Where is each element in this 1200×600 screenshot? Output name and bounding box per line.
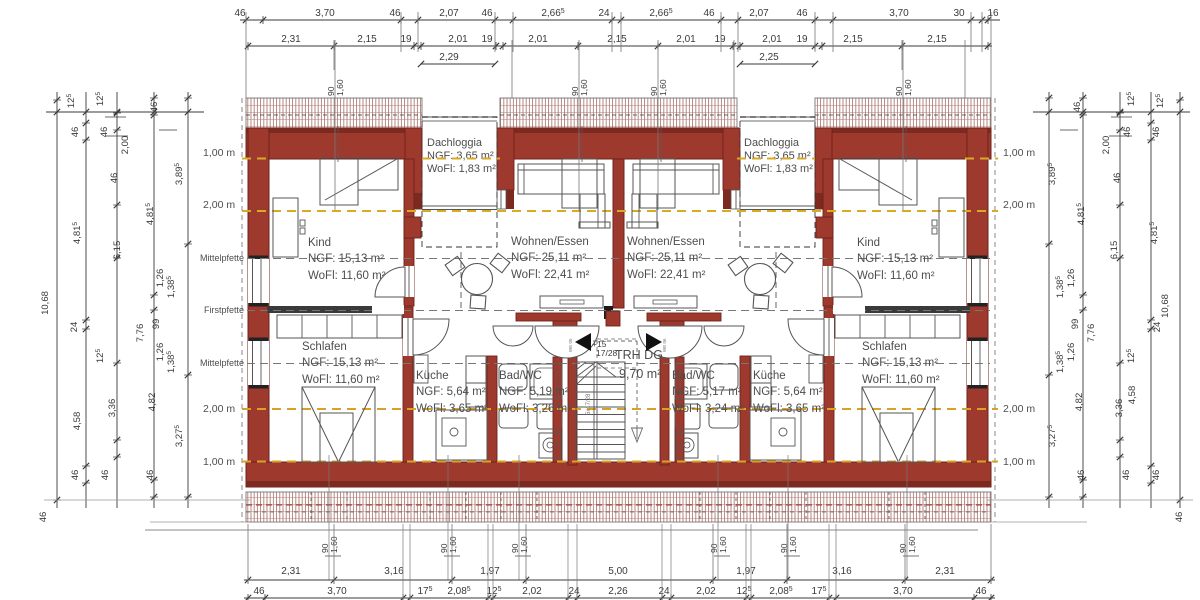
svg-text:WE 05: WE 05 — [568, 338, 573, 352]
svg-text:4,82: 4,82 — [147, 393, 158, 412]
svg-text:9,70 m²: 9,70 m² — [619, 367, 661, 381]
svg-text:2,07: 2,07 — [439, 8, 459, 19]
svg-text:1,60: 1,60 — [579, 79, 589, 96]
svg-text:1,60: 1,60 — [658, 79, 668, 96]
svg-text:3,16: 3,16 — [832, 566, 852, 577]
svg-text:3,70: 3,70 — [315, 8, 335, 19]
svg-text:2,00: 2,00 — [120, 136, 131, 155]
svg-text:46: 46 — [1151, 127, 1162, 138]
svg-text:NGF: 5,64 m²: NGF: 5,64 m² — [416, 386, 486, 398]
svg-text:Bad/WC: Bad/WC — [672, 370, 715, 382]
svg-text:NGF: 3,65 m²: NGF: 3,65 m² — [427, 150, 494, 162]
svg-text:Wohnen/Essen: Wohnen/Essen — [627, 236, 705, 248]
svg-text:5x17/28: 5x17/28 — [586, 393, 592, 415]
svg-text:1,00 m: 1,00 m — [1003, 456, 1035, 468]
svg-text:WoFl: 11,60 m²: WoFl: 11,60 m² — [857, 270, 935, 282]
svg-text:46: 46 — [100, 470, 111, 481]
svg-text:1,26: 1,26 — [1066, 343, 1077, 362]
svg-text:Schlafen: Schlafen — [862, 341, 907, 353]
svg-text:WoFl: 3,26 m²: WoFl: 3,26 m² — [499, 403, 571, 415]
svg-text:3,36: 3,36 — [107, 399, 118, 418]
svg-text:WE 06: WE 06 — [662, 338, 667, 352]
svg-text:1,26: 1,26 — [1066, 269, 1077, 288]
svg-text:Bad/WC: Bad/WC — [499, 370, 542, 382]
svg-text:46: 46 — [389, 8, 401, 19]
svg-text:Kind: Kind — [308, 237, 331, 249]
svg-text:46: 46 — [149, 102, 160, 113]
svg-text:46: 46 — [796, 8, 808, 19]
svg-text:46: 46 — [1112, 173, 1123, 184]
svg-text:24: 24 — [1152, 322, 1163, 333]
svg-text:24: 24 — [598, 8, 610, 19]
svg-text:Küche: Küche — [753, 370, 786, 382]
svg-text:46: 46 — [1121, 470, 1132, 481]
svg-text:46: 46 — [1076, 470, 1087, 481]
svg-text:10,68: 10,68 — [1160, 294, 1171, 318]
svg-text:7,76: 7,76 — [135, 324, 146, 343]
svg-text:2,15: 2,15 — [843, 34, 863, 45]
svg-text:WoFl: 11,60 m²: WoFl: 11,60 m² — [308, 270, 386, 282]
svg-text:2,00 m: 2,00 m — [203, 403, 235, 415]
svg-text:Kind: Kind — [857, 237, 880, 249]
svg-text:19: 19 — [714, 34, 726, 45]
svg-text:2,01: 2,01 — [762, 34, 782, 45]
svg-text:1,60: 1,60 — [788, 536, 798, 553]
svg-text:2,01: 2,01 — [448, 34, 468, 45]
svg-text:1,60: 1,60 — [448, 536, 458, 553]
svg-text:NGF: 25,11 m²: NGF: 25,11 m² — [511, 252, 586, 264]
svg-text:24: 24 — [658, 586, 670, 597]
svg-text:2,25: 2,25 — [759, 52, 779, 63]
svg-text:2,01: 2,01 — [528, 34, 548, 45]
svg-text:Mittelpfette: Mittelpfette — [200, 358, 244, 368]
svg-text:2,31: 2,31 — [281, 34, 301, 45]
svg-text:1,97: 1,97 — [480, 566, 500, 577]
svg-text:1,00 m: 1,00 m — [203, 147, 235, 159]
svg-text:WoFl: 11,60 m²: WoFl: 11,60 m² — [862, 374, 940, 386]
svg-text:WoFl: 22,41 m²: WoFl: 22,41 m² — [511, 269, 590, 281]
svg-text:6,15: 6,15 — [1109, 241, 1120, 260]
svg-text:46: 46 — [1174, 512, 1185, 523]
svg-text:NGF: 5,64 m²: NGF: 5,64 m² — [753, 386, 823, 398]
svg-text:46: 46 — [1151, 470, 1162, 481]
svg-text:99: 99 — [151, 319, 162, 330]
svg-text:46: 46 — [109, 173, 120, 184]
svg-text:5,00: 5,00 — [608, 566, 628, 577]
svg-text:2,02: 2,02 — [696, 586, 716, 597]
svg-text:1,00 m: 1,00 m — [1003, 147, 1035, 159]
svg-text:2,31: 2,31 — [935, 566, 955, 577]
svg-text:2,01: 2,01 — [676, 34, 696, 45]
svg-text:3,36: 3,36 — [1114, 399, 1125, 418]
svg-text:46: 46 — [234, 8, 246, 19]
svg-text:Dachloggia: Dachloggia — [427, 137, 483, 149]
svg-text:46: 46 — [70, 127, 81, 138]
svg-text:24: 24 — [568, 586, 580, 597]
svg-text:46: 46 — [38, 512, 49, 523]
svg-text:WoFl: 1,83 m²: WoFl: 1,83 m² — [744, 163, 813, 175]
svg-text:3,70: 3,70 — [327, 586, 347, 597]
svg-text:7,76: 7,76 — [1086, 324, 1097, 343]
svg-text:1,60: 1,60 — [519, 536, 529, 553]
svg-text:NGF: 15,13 m²: NGF: 15,13 m² — [857, 253, 933, 265]
svg-text:3,16: 3,16 — [384, 566, 404, 577]
svg-text:2,15: 2,15 — [607, 34, 627, 45]
svg-text:1,60: 1,60 — [335, 79, 345, 96]
svg-text:3,70: 3,70 — [893, 586, 913, 597]
svg-text:2,00 m: 2,00 m — [203, 199, 235, 211]
svg-text:46: 46 — [1072, 102, 1083, 113]
svg-text:4,82: 4,82 — [1074, 393, 1085, 412]
svg-text:TRH DG: TRH DG — [615, 348, 663, 362]
svg-text:Dachloggia: Dachloggia — [744, 137, 800, 149]
svg-text:WoFl: 3,24 m²: WoFl: 3,24 m² — [672, 403, 744, 415]
svg-text:WoFl: 11,60 m²: WoFl: 11,60 m² — [302, 374, 380, 386]
svg-text:46: 46 — [975, 586, 987, 597]
svg-text:2,02: 2,02 — [522, 586, 542, 597]
svg-text:Firstpfette: Firstpfette — [204, 305, 244, 315]
svg-text:NGF: 3,65 m²: NGF: 3,65 m² — [744, 150, 811, 162]
svg-text:46: 46 — [481, 8, 493, 19]
svg-text:1,26: 1,26 — [155, 343, 166, 362]
svg-text:2,15: 2,15 — [357, 34, 377, 45]
svg-text:WoFl: 3,65 m²: WoFl: 3,65 m² — [753, 403, 825, 415]
svg-text:46: 46 — [253, 586, 265, 597]
svg-text:Mittelpfette: Mittelpfette — [200, 253, 244, 263]
svg-text:4,58: 4,58 — [1127, 386, 1138, 405]
svg-text:NGF: 25,11 m²: NGF: 25,11 m² — [627, 252, 702, 264]
svg-text:NGF: 15,13 m²: NGF: 15,13 m² — [302, 357, 378, 369]
svg-text:46: 46 — [70, 470, 81, 481]
svg-text:WoFl: 22,41 m²: WoFl: 22,41 m² — [627, 269, 706, 281]
svg-text:46: 46 — [703, 8, 715, 19]
svg-text:3,70: 3,70 — [889, 8, 909, 19]
svg-text:46: 46 — [145, 470, 156, 481]
svg-text:WoFl: 3,65 m²: WoFl: 3,65 m² — [416, 403, 488, 415]
svg-text:Schlafen: Schlafen — [302, 341, 347, 353]
svg-text:19: 19 — [796, 34, 808, 45]
svg-text:19: 19 — [400, 34, 412, 45]
svg-text:24: 24 — [69, 322, 80, 333]
svg-text:NGF: 15,13 m²: NGF: 15,13 m² — [862, 357, 938, 369]
svg-text:2,00 m: 2,00 m — [1003, 403, 1035, 415]
svg-text:6,15: 6,15 — [112, 241, 123, 260]
svg-text:Wohnen/Essen: Wohnen/Essen — [511, 236, 589, 248]
svg-text:Küche: Küche — [416, 370, 449, 382]
svg-text:WoFl: 1,83 m²: WoFl: 1,83 m² — [427, 163, 496, 175]
svg-text:30: 30 — [953, 8, 965, 19]
svg-text:2,31: 2,31 — [281, 566, 301, 577]
svg-text:2,00: 2,00 — [1101, 136, 1112, 155]
svg-text:2,07: 2,07 — [749, 8, 769, 19]
svg-text:1,60: 1,60 — [718, 536, 728, 553]
svg-text:1,26: 1,26 — [155, 269, 166, 288]
svg-text:19: 19 — [481, 34, 493, 45]
svg-text:2,00 m: 2,00 m — [1003, 199, 1035, 211]
svg-text:1,00 m: 1,00 m — [203, 456, 235, 468]
svg-text:NGF: 15,13 m²: NGF: 15,13 m² — [308, 253, 384, 265]
svg-text:1,60: 1,60 — [903, 79, 913, 96]
svg-text:2,29: 2,29 — [439, 52, 459, 63]
svg-text:1,60: 1,60 — [907, 536, 917, 553]
svg-text:2,26: 2,26 — [608, 586, 628, 597]
svg-text:99: 99 — [1070, 319, 1081, 330]
svg-text:16: 16 — [987, 8, 999, 19]
svg-text:4,58: 4,58 — [72, 412, 83, 431]
svg-text:2,15: 2,15 — [927, 34, 947, 45]
svg-text:10,68: 10,68 — [40, 291, 51, 315]
